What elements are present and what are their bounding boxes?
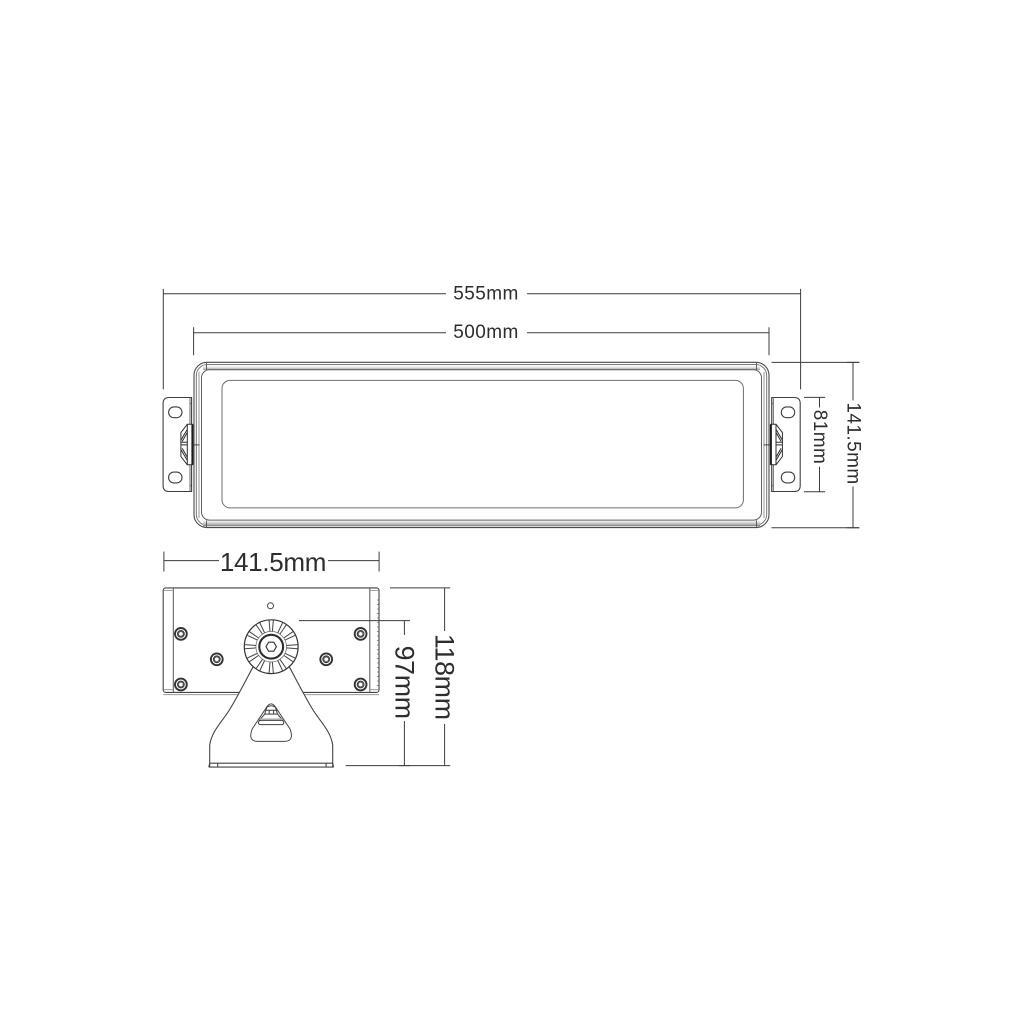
svg-text:555mm: 555mm — [453, 283, 519, 304]
svg-text:118mm: 118mm — [430, 634, 460, 720]
svg-text:500mm: 500mm — [453, 322, 519, 343]
svg-text:141.5mm: 141.5mm — [843, 402, 864, 484]
svg-text:141.5mm: 141.5mm — [220, 547, 326, 577]
svg-text:97mm: 97mm — [389, 646, 419, 719]
svg-text:81mm: 81mm — [809, 410, 830, 465]
